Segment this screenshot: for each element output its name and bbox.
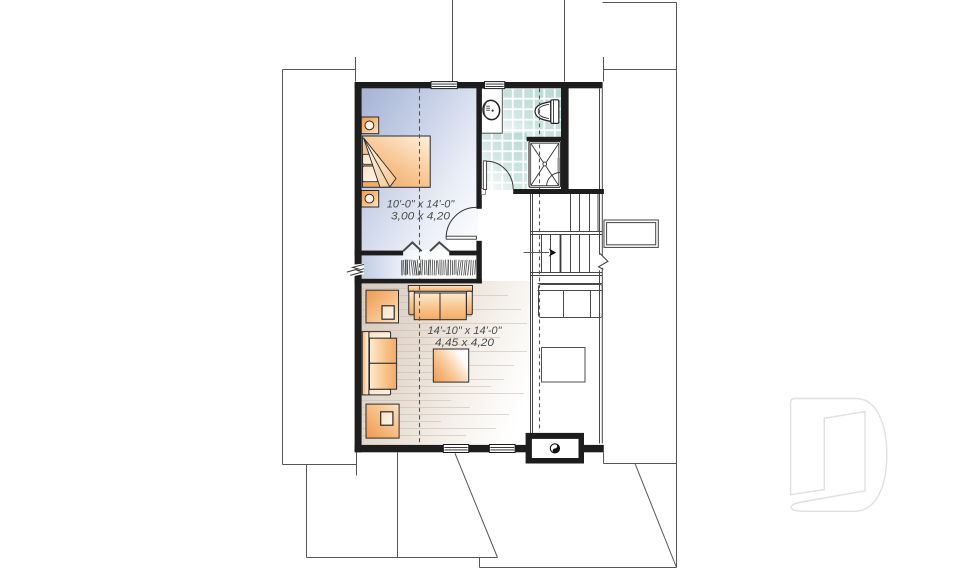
svg-text:14'-10" x 14'-0": 14'-10" x 14'-0" <box>428 325 503 337</box>
svg-text:4,45 x 4,20: 4,45 x 4,20 <box>435 337 494 349</box>
svg-text:3,00 x 4,20: 3,00 x 4,20 <box>391 211 450 223</box>
svg-text:10'-0" x 14'-0": 10'-0" x 14'-0" <box>387 199 456 211</box>
